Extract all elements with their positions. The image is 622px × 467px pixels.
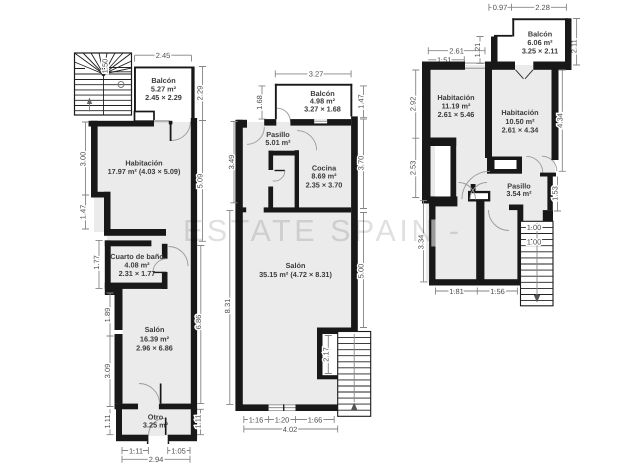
- svg-text:16.39 m²: 16.39 m²: [140, 335, 170, 344]
- svg-text:1.53: 1.53: [551, 186, 560, 201]
- svg-text:1.89: 1.89: [103, 308, 112, 323]
- svg-text:3.27: 3.27: [309, 70, 324, 79]
- svg-text:8.69 m²: 8.69 m²: [311, 172, 337, 181]
- svg-text:1.11: 1.11: [103, 414, 112, 428]
- svg-text:1.21: 1.21: [473, 43, 482, 58]
- svg-text:2.94: 2.94: [149, 455, 164, 464]
- svg-text:2.92: 2.92: [409, 97, 418, 112]
- svg-text:5.01 m²: 5.01 m²: [265, 138, 291, 147]
- svg-text:1.81: 1.81: [449, 287, 464, 296]
- svg-text:1.47: 1.47: [357, 94, 366, 109]
- svg-text:3.27 × 1.68: 3.27 × 1.68: [304, 105, 341, 114]
- svg-text:2.17: 2.17: [321, 347, 330, 362]
- svg-text:1.11: 1.11: [129, 446, 143, 455]
- svg-text:1.68: 1.68: [255, 95, 264, 110]
- svg-text:6.86: 6.86: [194, 315, 203, 330]
- svg-text:2.53: 2.53: [409, 161, 418, 176]
- svg-text:2.31 × 1.77: 2.31 × 1.77: [119, 269, 156, 278]
- svg-text:3.25 × 2.11: 3.25 × 2.11: [522, 47, 558, 56]
- svg-text:2.29: 2.29: [196, 86, 205, 101]
- svg-text:35.15 m² (4.72 × 8.31): 35.15 m² (4.72 × 8.31): [259, 270, 332, 279]
- svg-text:2.45 × 2.29: 2.45 × 2.29: [145, 93, 182, 102]
- svg-text:3.25 m²: 3.25 m²: [143, 421, 169, 430]
- svg-text:1.20: 1.20: [275, 415, 290, 424]
- svg-text:3.70: 3.70: [357, 156, 366, 171]
- svg-text:1.50: 1.50: [101, 59, 110, 74]
- svg-text:1.00: 1.00: [527, 223, 542, 232]
- svg-text:2.45: 2.45: [156, 51, 171, 60]
- svg-text:2.61: 2.61: [449, 47, 464, 56]
- svg-text:17.97 m² (4.03 × 5.09): 17.97 m² (4.03 × 5.09): [108, 167, 181, 176]
- svg-text:1.16: 1.16: [249, 415, 264, 424]
- svg-text:1.56: 1.56: [490, 287, 505, 296]
- svg-text:4.02: 4.02: [283, 425, 298, 434]
- svg-text:5.09: 5.09: [196, 174, 205, 189]
- svg-text:8.31: 8.31: [223, 299, 232, 314]
- svg-text:Salón: Salón: [145, 325, 165, 334]
- svg-text:2.35 × 3.70: 2.35 × 3.70: [306, 181, 343, 190]
- svg-text:3.49: 3.49: [227, 155, 236, 170]
- svg-text:1.11: 1.11: [194, 414, 203, 428]
- svg-text:4.34: 4.34: [555, 113, 564, 128]
- svg-text:3.54 m²: 3.54 m²: [506, 189, 532, 198]
- svg-text:1.77: 1.77: [92, 255, 101, 270]
- svg-text:2.61 × 4.34: 2.61 × 4.34: [502, 125, 540, 134]
- svg-text:1.66: 1.66: [308, 415, 323, 424]
- svg-text:ESTATE SPAIN -: ESTATE SPAIN -: [183, 214, 462, 248]
- svg-text:1.05: 1.05: [171, 446, 186, 455]
- svg-text:5.00: 5.00: [357, 264, 366, 279]
- svg-text:3.00: 3.00: [79, 152, 88, 167]
- svg-text:2.28: 2.28: [535, 3, 550, 12]
- svg-text:1.47: 1.47: [79, 205, 88, 220]
- svg-text:1.00: 1.00: [527, 238, 542, 247]
- svg-text:0.97: 0.97: [493, 3, 508, 12]
- svg-text:2.61 × 5.46: 2.61 × 5.46: [438, 110, 475, 119]
- svg-text:Salón: Salón: [286, 261, 306, 270]
- svg-text:2.96 × 6.86: 2.96 × 6.86: [136, 344, 173, 353]
- svg-text:3.09: 3.09: [103, 364, 112, 379]
